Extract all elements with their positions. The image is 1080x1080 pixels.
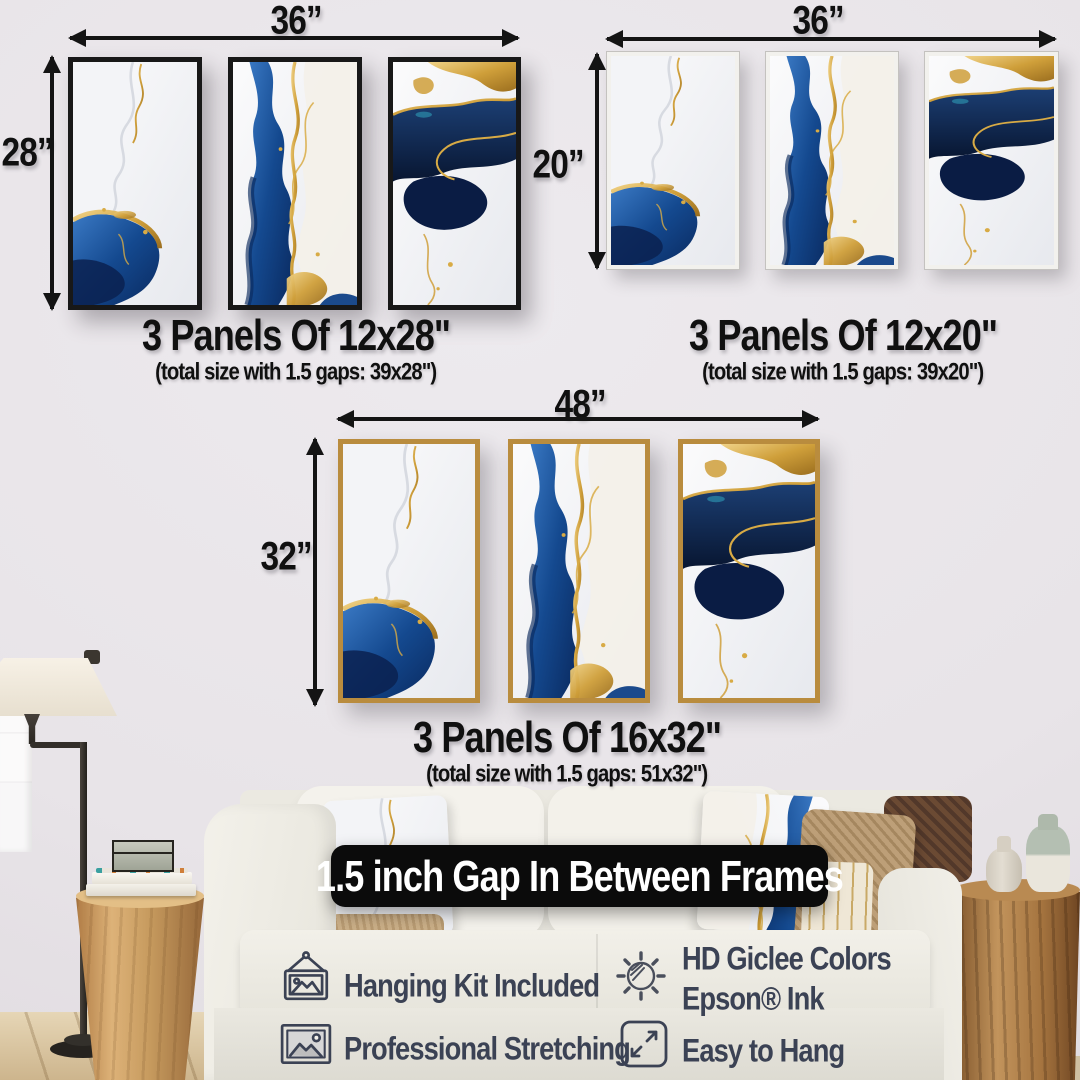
height-label-16x32: 32” <box>256 536 316 579</box>
feature-hd-giclee: HD Giclee Colors <box>682 941 919 977</box>
vase-small <box>986 848 1022 892</box>
height-arrow-12x20 <box>595 54 599 268</box>
caption-subtitle-12x20: (total size with 1.5 gaps: 39x20") <box>702 356 983 388</box>
feature-easy-to-hang-text: Easy to Hang <box>682 1032 844 1070</box>
left-stump-grain <box>76 892 204 1080</box>
book-bottom <box>86 884 196 896</box>
panel-artwork <box>233 62 357 305</box>
height-label-12x28: 28” <box>0 132 56 175</box>
width-value-16x32: 48” <box>554 383 605 429</box>
gap-info-banner: 1.5 inch Gap In Between Frames <box>331 845 828 907</box>
panel-artwork <box>770 56 894 265</box>
caption-16x32: 3 Panels Of 16x32" (total size with 1.5 … <box>367 716 767 789</box>
feature-epson-ink: Epson® Ink <box>682 981 843 1017</box>
caption-subtitle-16x32: (total size with 1.5 gaps: 51x32") <box>426 758 707 790</box>
caption-12x20: 3 Panels Of 12x20" (total size with 1.5 … <box>643 314 1043 387</box>
vase-large-neck <box>1038 814 1058 830</box>
caption-12x28: 3 Panels Of 12x28" (total size with 1.5 … <box>96 314 496 387</box>
height-value-12x20: 20” <box>532 143 583 189</box>
panel-artwork <box>513 444 645 698</box>
feature-hanging-kit: Hanging Kit Included <box>344 968 634 1004</box>
width-arrow-16x32 <box>338 417 818 421</box>
panel-frame <box>766 52 898 269</box>
height-value-16x32: 32” <box>260 535 311 581</box>
panel-artwork <box>73 62 197 305</box>
height-arrow-16x32 <box>313 439 317 705</box>
vase-small-neck <box>997 836 1011 852</box>
feature-epson-ink-text: Epson® Ink <box>682 980 824 1018</box>
panel-artwork <box>611 56 735 265</box>
hanging-frame-icon <box>279 950 333 1004</box>
width-arrow-12x28 <box>70 36 518 40</box>
panel-frame <box>508 439 650 703</box>
vase-large <box>1026 826 1070 892</box>
feature-hd-giclee-text: HD Giclee Colors <box>682 940 891 978</box>
height-label-12x20: 20” <box>528 144 588 187</box>
right-stump-grain <box>953 886 1080 1080</box>
caption-title-12x28: 3 Panels Of 12x28" <box>142 313 450 359</box>
panel-artwork <box>683 444 815 698</box>
panel-artwork <box>393 62 516 305</box>
decor-box-lid-line <box>114 852 172 854</box>
image-frame-icon <box>279 1020 333 1068</box>
feature-easy-to-hang: Easy to Hang <box>682 1033 866 1069</box>
feature-professional-stretching-text: Professional Stretching <box>344 1030 630 1068</box>
panel-frame <box>925 52 1058 269</box>
feature-hanging-kit-text: Hanging Kit Included <box>344 967 599 1005</box>
width-arrow-12x20 <box>607 37 1055 41</box>
decor-box <box>112 840 174 872</box>
panel-frame <box>228 57 362 310</box>
panel-frame <box>68 57 202 310</box>
giclee-ink-icon <box>608 942 674 1008</box>
expand-arrows-icon <box>618 1018 670 1070</box>
panel-frame <box>388 57 521 310</box>
panel-artwork <box>929 56 1054 265</box>
panel-frame <box>338 439 480 703</box>
lamp-shade <box>0 658 117 716</box>
height-value-12x28: 28” <box>1 131 52 177</box>
panel-frame <box>678 439 820 703</box>
caption-title-16x32: 3 Panels Of 16x32" <box>413 715 721 761</box>
lamp-arm <box>30 742 86 748</box>
book-top <box>92 872 192 884</box>
panel-artwork <box>343 444 475 698</box>
panel-frame <box>607 52 739 269</box>
gap-info-text: 1.5 inch Gap In Between Frames <box>316 851 843 901</box>
height-arrow-12x28 <box>50 57 54 309</box>
caption-subtitle-12x28: (total size with 1.5 gaps: 39x28") <box>155 356 436 388</box>
wall-art-size-infographic: 36” 28” 3 Panels Of 12x28" (total size w… <box>0 0 1080 1080</box>
caption-title-12x20: 3 Panels Of 12x20" <box>689 313 997 359</box>
